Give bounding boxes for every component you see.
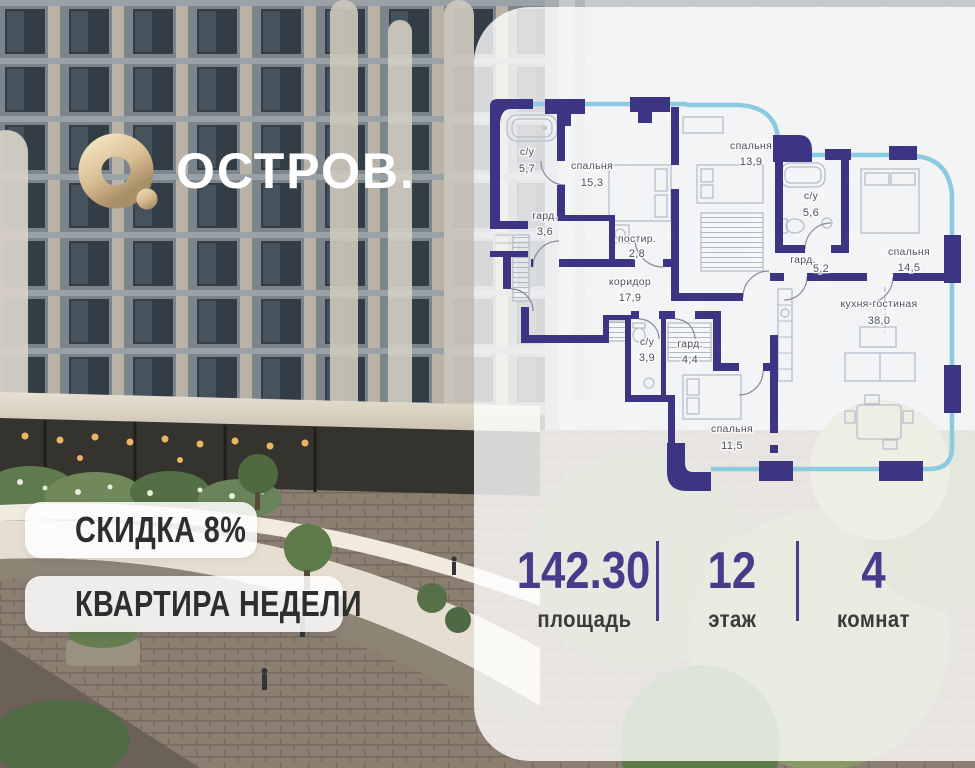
- area-label: площадь: [537, 606, 631, 633]
- floor-value: 12: [708, 545, 757, 597]
- room-label: с/у: [640, 336, 655, 348]
- room-area: 5,7: [519, 163, 535, 175]
- room-label: с/у: [804, 190, 819, 202]
- floor-label: этаж: [708, 606, 756, 633]
- stat-rooms: 4 комнат: [796, 545, 950, 633]
- room-label: спальня: [888, 246, 930, 258]
- room-label: гард.: [677, 338, 703, 350]
- room-area: 15,3: [581, 177, 604, 189]
- room-label: кухня-гостиная: [840, 298, 917, 310]
- room-area: 3,9: [639, 352, 655, 364]
- room-label: гард.: [532, 210, 558, 222]
- room-area: 17,9: [619, 292, 642, 304]
- room-label: спальня: [711, 423, 753, 435]
- brand-name: ОСТРОВ.: [176, 146, 416, 196]
- apartment-stats: 142.30 площадь 12 этаж 4 комнат: [500, 545, 950, 633]
- weekly-apartment-label: КВАРТИРА НЕДЕЛИ: [75, 583, 362, 625]
- room-area: 13,9: [740, 156, 763, 168]
- stat-floor: 12 этаж: [668, 545, 796, 633]
- floor-plan: с/у 5,7 спальня 15,3 гард. 3,6 постир. 2…: [487, 95, 962, 510]
- rooms-value: 4: [861, 545, 885, 597]
- discount-badge-label: СКИДКА 8%: [75, 509, 246, 551]
- furniture: [495, 115, 919, 449]
- stat-area: 142.30 площадь: [500, 545, 668, 633]
- room-label: постир.: [618, 233, 656, 245]
- room-label: с/у: [520, 146, 535, 158]
- rooms-label: комнат: [837, 606, 910, 633]
- room-label: спальня: [571, 160, 613, 172]
- stats-divider: [796, 541, 799, 621]
- area-value: 142.30: [517, 545, 651, 597]
- room-area: 3,6: [537, 226, 553, 238]
- room-label: коридор: [609, 276, 651, 288]
- room-area: 38,0: [868, 315, 891, 327]
- room-area: 5,2: [813, 263, 829, 275]
- room-area: 14,5: [898, 262, 921, 274]
- room-area: 5,6: [803, 207, 819, 219]
- logo: ОСТРОВ.: [76, 110, 496, 220]
- discount-badge: СКИДКА 8%: [25, 502, 257, 558]
- promo-card: с/у 5,7 спальня 15,3 гард. 3,6 постир. 2…: [0, 0, 975, 768]
- room-label: спальня: [730, 140, 772, 152]
- room-area: 2,8: [629, 248, 645, 260]
- room-area: 4,4: [682, 354, 698, 366]
- weekly-apartment-badge: КВАРТИРА НЕДЕЛИ: [25, 576, 343, 632]
- room-area: 11,5: [721, 440, 743, 452]
- stats-divider: [656, 541, 659, 621]
